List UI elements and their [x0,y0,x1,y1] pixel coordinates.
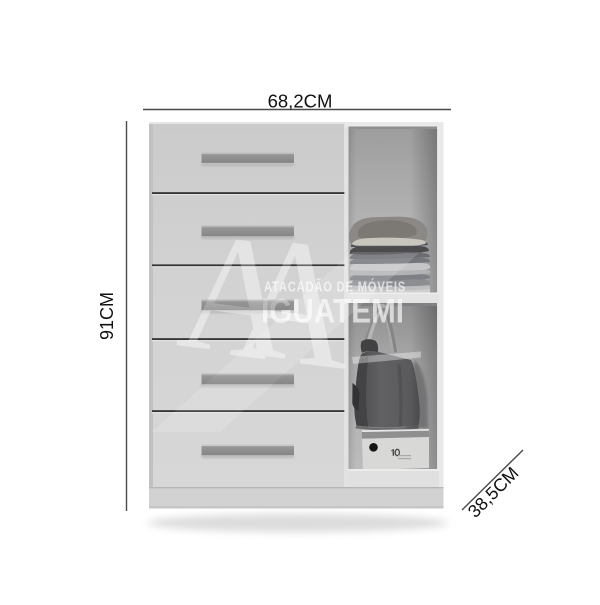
svg-text:68,2CM: 68,2CM [268,91,333,112]
svg-text:IGUATEMI: IGUATEMI [261,293,404,331]
svg-text:91CM: 91CM [97,292,117,340]
